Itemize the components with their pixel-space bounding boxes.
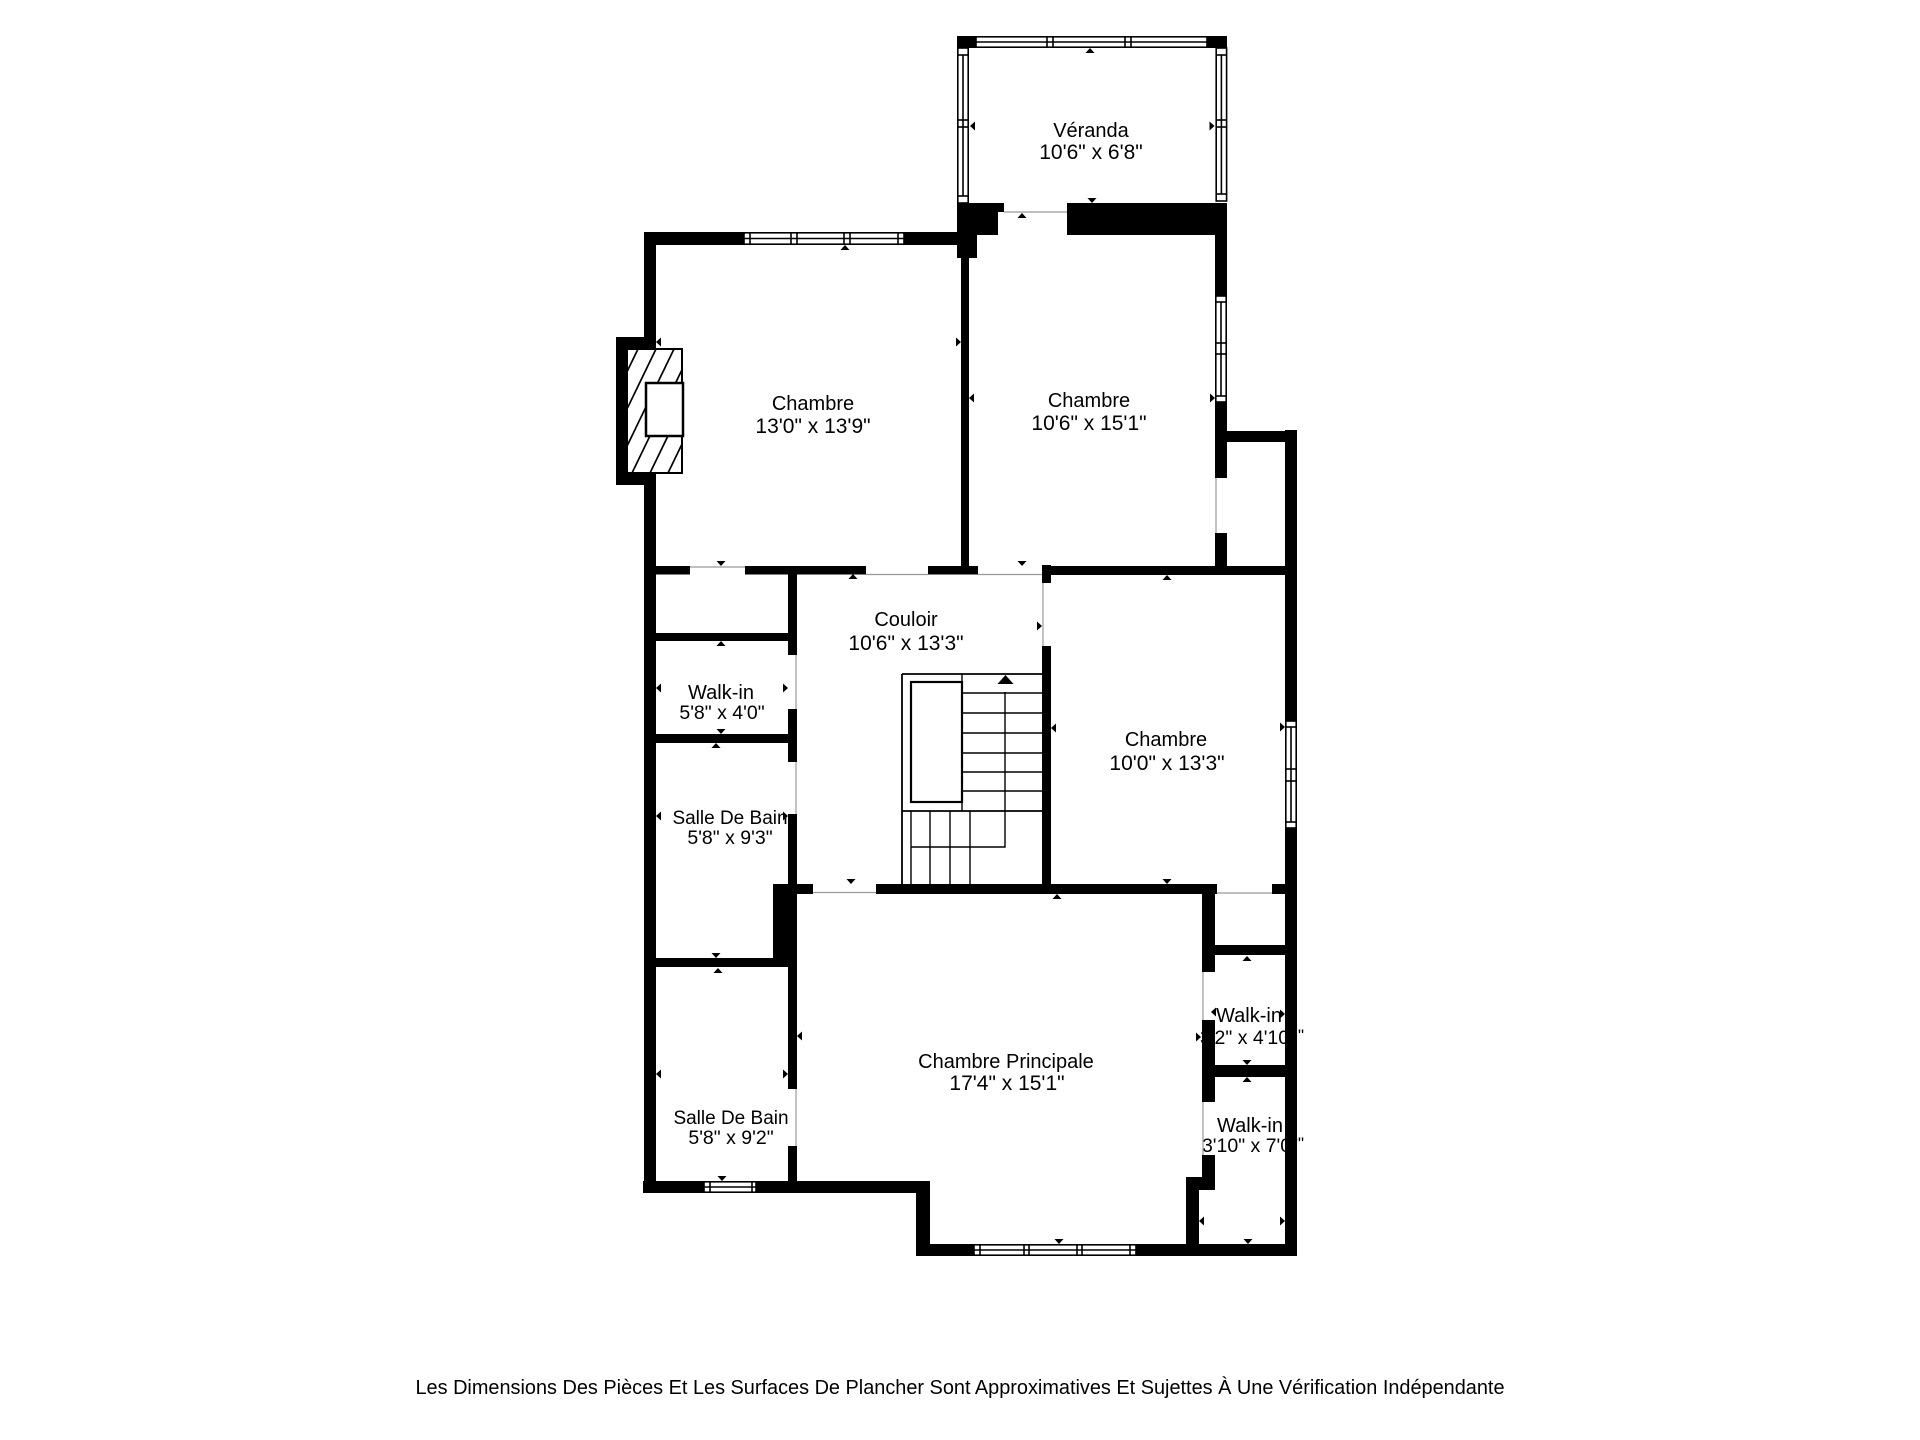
svg-text:10'6" x 6'8": 10'6" x 6'8" bbox=[1039, 141, 1143, 164]
svg-text:": " bbox=[1298, 1026, 1304, 1045]
svg-text:3'2" x 4'10": 3'2" x 4'10" bbox=[1200, 1027, 1296, 1049]
svg-text:Walk-in: Walk-in bbox=[1217, 1115, 1283, 1137]
svg-text:17'4" x 15'1": 17'4" x 15'1" bbox=[949, 1072, 1064, 1095]
svg-text:Chambre: Chambre bbox=[1048, 390, 1130, 412]
svg-text:": " bbox=[1298, 1134, 1304, 1153]
svg-text:5'8" x 4'0": 5'8" x 4'0" bbox=[679, 702, 764, 724]
svg-text:Les Dimensions Des Pièces Et L: Les Dimensions Des Pièces Et Les Surface… bbox=[415, 1376, 1504, 1399]
svg-text:Salle De Bain: Salle De Bain bbox=[673, 1108, 788, 1129]
svg-text:Véranda: Véranda bbox=[1053, 120, 1129, 142]
svg-text:Chambre: Chambre bbox=[772, 393, 854, 415]
svg-text:Couloir: Couloir bbox=[874, 609, 938, 631]
svg-text:Salle De Bain: Salle De Bain bbox=[672, 808, 787, 829]
svg-text:Chambre Principale: Chambre Principale bbox=[918, 1051, 1094, 1073]
svg-text:Walk-in: Walk-in bbox=[688, 682, 754, 704]
svg-text:Chambre: Chambre bbox=[1125, 729, 1207, 751]
svg-text:10'6" x 15'1": 10'6" x 15'1" bbox=[1031, 412, 1146, 435]
svg-text:3'10" x 7'0": 3'10" x 7'0" bbox=[1202, 1135, 1298, 1157]
svg-text:10'0" x 13'3": 10'0" x 13'3" bbox=[1109, 752, 1224, 775]
svg-text:10'6" x 13'3": 10'6" x 13'3" bbox=[848, 632, 963, 655]
svg-text:5'8" x 9'3": 5'8" x 9'3" bbox=[687, 827, 772, 849]
svg-text:13'0" x 13'9": 13'0" x 13'9" bbox=[755, 415, 870, 438]
svg-text:5'8" x 9'2": 5'8" x 9'2" bbox=[688, 1127, 773, 1149]
svg-text:Walk-in: Walk-in bbox=[1216, 1005, 1282, 1027]
